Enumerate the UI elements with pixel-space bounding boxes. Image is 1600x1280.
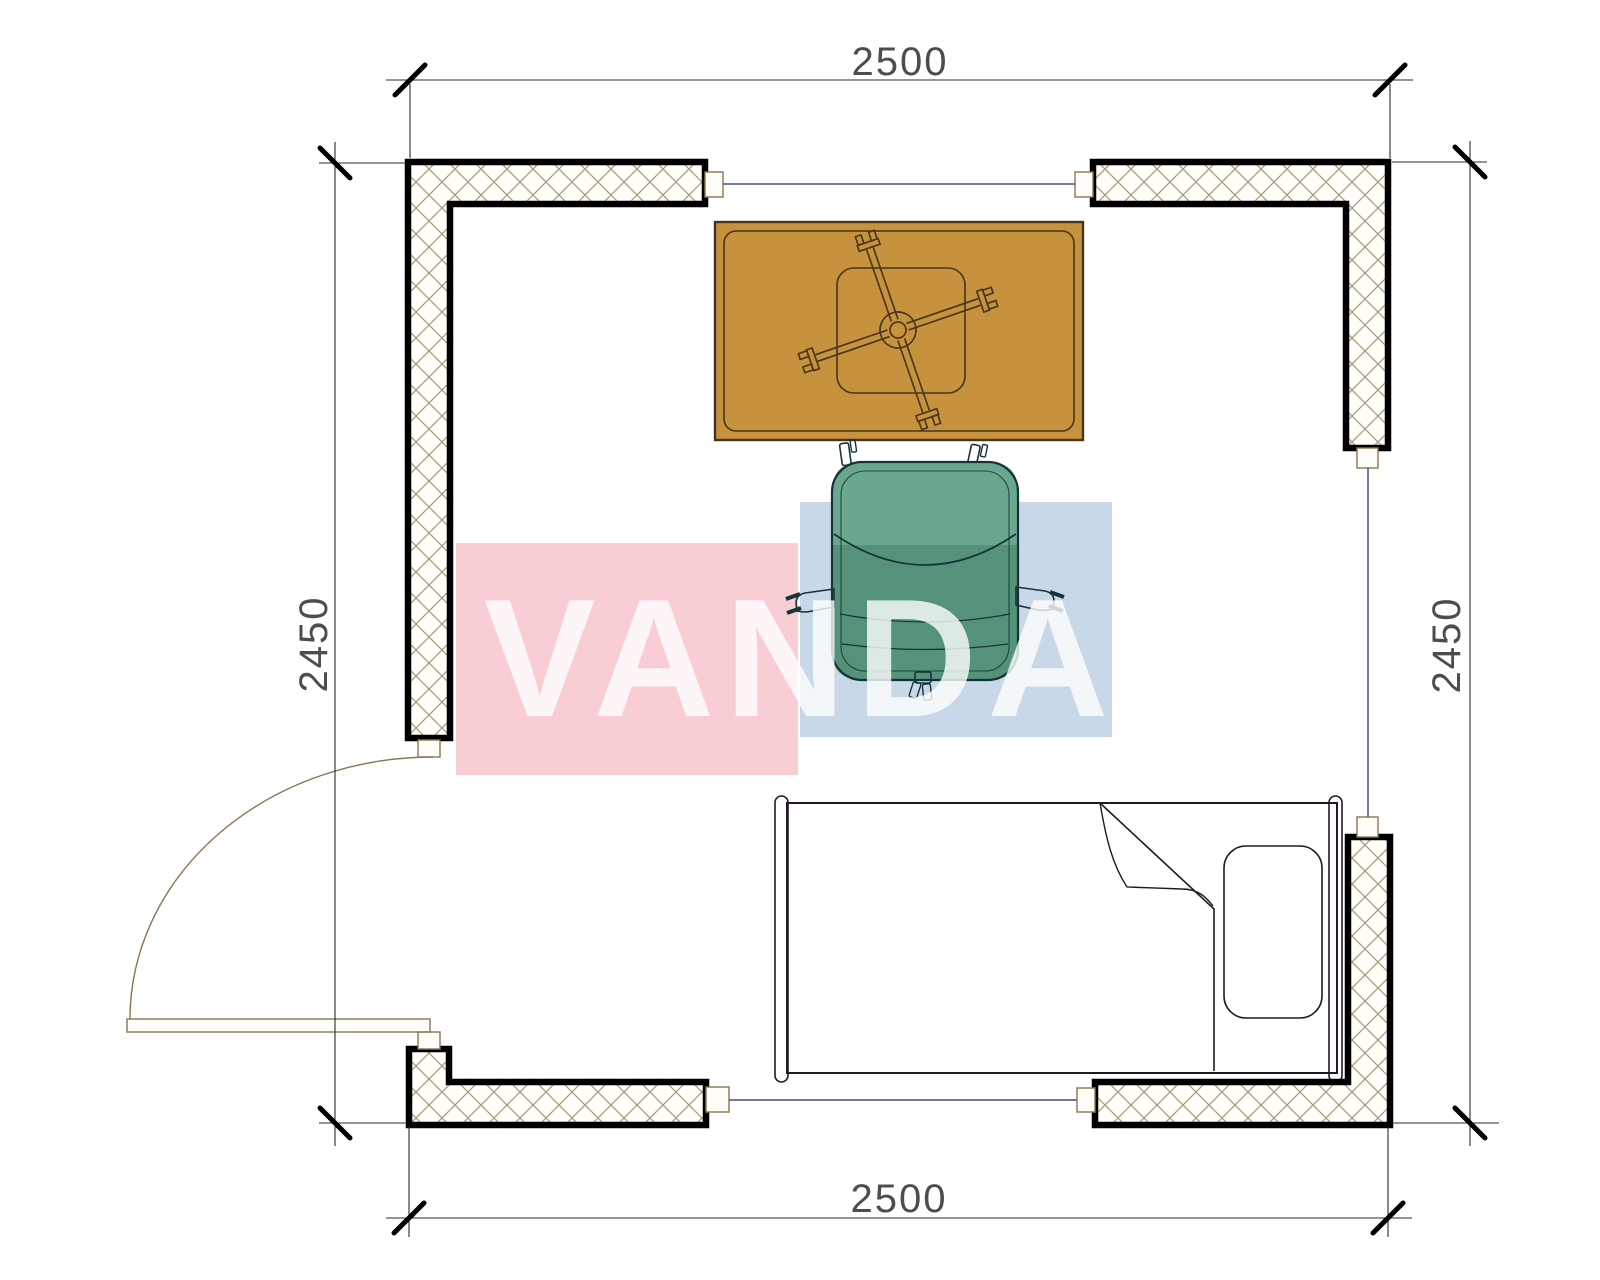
watermark-text: VANDA bbox=[484, 564, 1119, 752]
door bbox=[127, 757, 433, 1032]
dimension-right: 2450 bbox=[1392, 141, 1499, 1146]
dimension-bottom: 2500 bbox=[386, 1127, 1412, 1237]
wall-joint-right-lower bbox=[1357, 817, 1378, 837]
bed-footboard bbox=[1329, 796, 1342, 1082]
dimension-label-top: 2500 bbox=[852, 40, 949, 84]
wall-bottom-left bbox=[409, 1049, 706, 1125]
dimension-label-left: 2450 bbox=[292, 596, 336, 693]
wall-joint-top-left bbox=[705, 172, 723, 197]
floor-plan-page: VANDA 2500 bbox=[0, 0, 1600, 1280]
wall-joint-door-top bbox=[418, 740, 440, 757]
dimension-label-bottom: 2500 bbox=[851, 1177, 948, 1221]
dimension-label-right: 2450 bbox=[1425, 597, 1469, 694]
door-leaf bbox=[127, 1019, 430, 1032]
dimension-top: 2500 bbox=[386, 40, 1413, 158]
wall-joint-door-bottom bbox=[418, 1032, 440, 1049]
wall-top-right bbox=[1093, 162, 1388, 448]
bed-blanket-fold bbox=[1100, 803, 1214, 1071]
wall-bottom-right bbox=[1095, 837, 1390, 1125]
wall-joint-top-right bbox=[1075, 172, 1093, 197]
wall-joint-bottom-left bbox=[706, 1087, 729, 1112]
dimension-left: 2450 bbox=[292, 142, 406, 1146]
floor-plan-drawing: VANDA 2500 bbox=[0, 0, 1600, 1280]
table bbox=[715, 200, 1083, 459]
chair-headrest bbox=[832, 462, 1018, 545]
bed-pillow bbox=[1224, 846, 1322, 1018]
door-swing-arc bbox=[130, 757, 433, 1019]
wall-joint-right-upper bbox=[1357, 448, 1378, 468]
wall-joint-bottom-right bbox=[1077, 1088, 1095, 1112]
bed-mattress bbox=[787, 803, 1337, 1073]
bed bbox=[775, 796, 1342, 1082]
table-top bbox=[715, 222, 1083, 440]
